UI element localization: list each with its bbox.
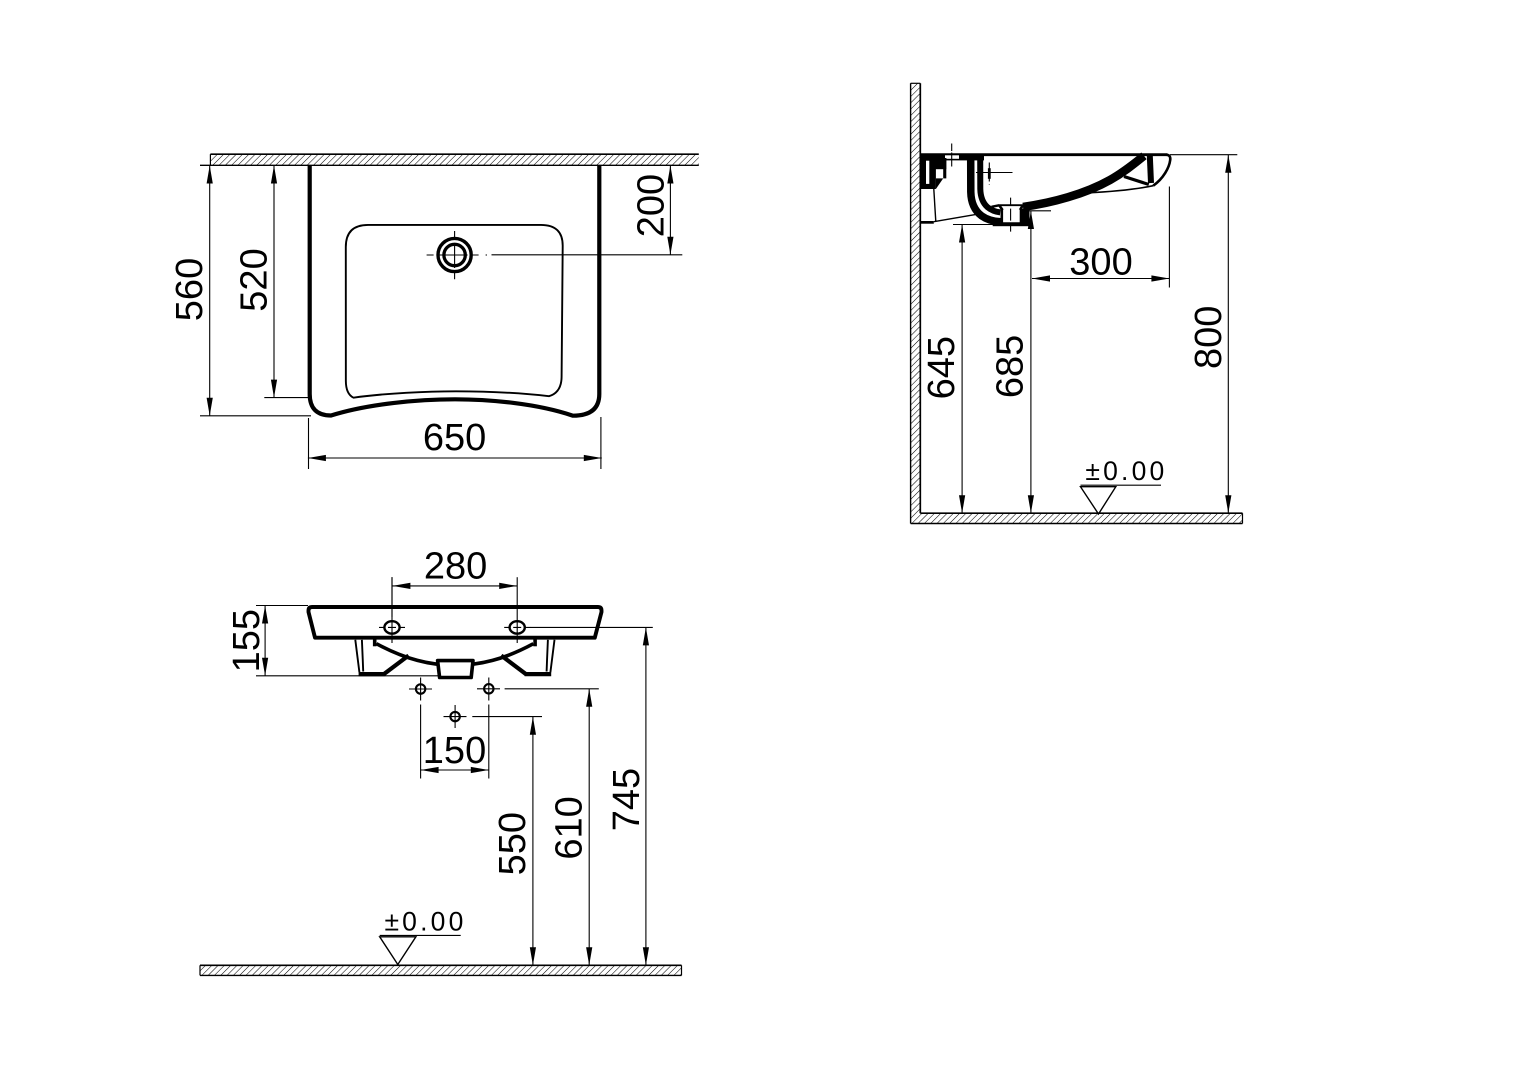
svg-text:200: 200 xyxy=(631,174,673,237)
svg-text:650: 650 xyxy=(423,417,486,459)
svg-text:610: 610 xyxy=(549,796,591,859)
svg-text:800: 800 xyxy=(1188,306,1230,369)
svg-text:±0.00: ±0.00 xyxy=(384,906,466,936)
svg-text:155: 155 xyxy=(226,609,268,672)
svg-text:300: 300 xyxy=(1069,241,1132,283)
svg-text:550: 550 xyxy=(492,812,534,875)
svg-text:645: 645 xyxy=(921,336,963,399)
svg-text:±0.00: ±0.00 xyxy=(1085,456,1167,486)
svg-text:280: 280 xyxy=(424,546,487,588)
svg-text:685: 685 xyxy=(990,335,1032,398)
svg-text:560: 560 xyxy=(169,258,211,321)
svg-text:520: 520 xyxy=(233,248,275,311)
svg-text:150: 150 xyxy=(423,730,486,772)
svg-text:745: 745 xyxy=(606,768,648,831)
